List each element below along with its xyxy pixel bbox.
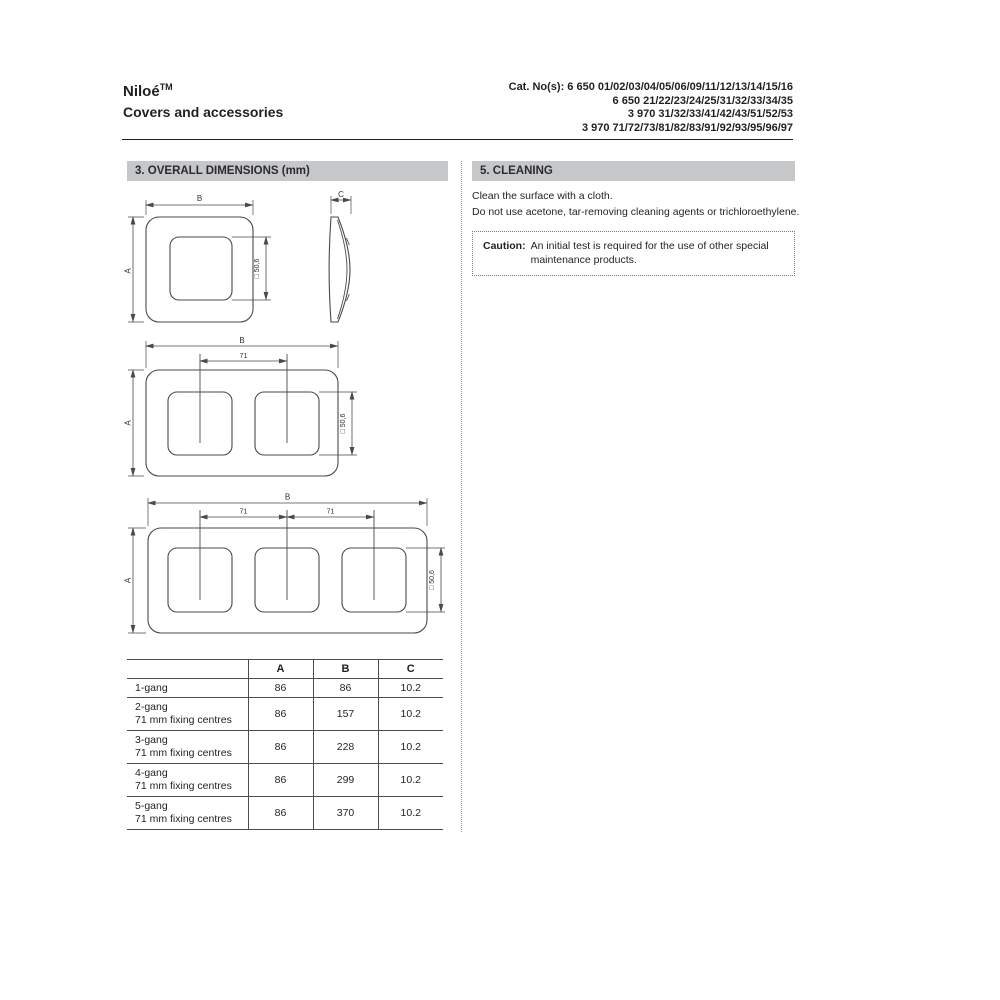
catalogue-numbers: Cat. No(s): 6 650 01/02/03/04/05/06/09/1…	[509, 81, 793, 135]
section-heading-cleaning: 5. CLEANING	[472, 161, 795, 181]
trademark-symbol: TM	[160, 82, 173, 92]
dim-label-A: A	[124, 268, 133, 274]
table-header-row: A B C	[127, 660, 443, 679]
page-title: NiloéTM	[123, 78, 283, 101]
dim-label-window: □ 50,6	[254, 258, 261, 278]
table-row: 3-gang 71 mm fixing centres 86 228 10.2	[127, 731, 443, 764]
dimension-A: A	[124, 370, 145, 476]
dimension-B: B	[148, 493, 427, 527]
dimension-A: A	[124, 217, 145, 322]
dimension-71: 71	[200, 353, 287, 361]
front-view-3-gang	[148, 510, 427, 633]
table-row: 2-gang 71 mm fixing centres 86 157 10.2	[127, 698, 443, 731]
dim-label-B: B	[239, 336, 244, 345]
page-subtitle: Covers and accessories	[123, 103, 283, 121]
col-header-B: B	[313, 660, 378, 679]
title-block: NiloéTM Covers and accessories	[123, 78, 283, 121]
dimension-C: C	[331, 190, 351, 214]
cleaning-instructions: Clean the surface with a cloth. Do not u…	[472, 189, 802, 220]
dimension-B: B	[146, 194, 253, 215]
cat-line: 3 970 31/32/33/41/42/43/51/52/53	[509, 108, 793, 122]
dim-label-B: B	[197, 194, 202, 203]
dim-label-71: 71	[240, 509, 248, 516]
dim-label-window: □ 50,6	[429, 570, 436, 590]
col-header-C: C	[378, 660, 443, 679]
dim-label-A: A	[124, 577, 133, 583]
drawing-2-gang: B 71 A □ 50,6	[125, 335, 375, 485]
drawing-1-gang: B A □ 50,6 C	[125, 188, 370, 336]
cleaning-line: Do not use acetone, tar-removing cleanin…	[472, 205, 802, 221]
window-opening	[170, 237, 232, 300]
col-header-blank	[127, 660, 248, 679]
dim-label-B: B	[285, 493, 290, 502]
cleaning-line: Clean the surface with a cloth.	[472, 189, 802, 205]
side-view-profile	[329, 217, 350, 322]
caution-text: An initial test is required for the use …	[531, 239, 769, 267]
dim-label-A: A	[124, 420, 133, 426]
cat-line: 6 650 21/22/23/24/25/31/32/33/34/35	[509, 95, 793, 109]
cat-line: Cat. No(s): 6 650 01/02/03/04/05/06/09/1…	[509, 81, 793, 95]
front-view-1-gang	[146, 217, 253, 322]
table-row: 1-gang 86 86 10.2	[127, 679, 443, 698]
dim-label-C: C	[338, 190, 344, 199]
table-row: 4-gang 71 mm fixing centres 86 299 10.2	[127, 764, 443, 797]
front-view-2-gang	[146, 354, 338, 476]
dimension-A: A	[124, 528, 147, 633]
dim-label-71: 71	[240, 353, 248, 360]
caution-label: Caution:	[483, 239, 526, 267]
col-header-A: A	[248, 660, 313, 679]
cat-line: 3 970 71/72/73/81/82/83/91/92/93/95/96/9…	[509, 122, 793, 136]
dimensions-table: A B C 1-gang 86 86 10.2 2-gang 71 mm fix…	[127, 659, 443, 830]
drawing-3-gang: B 71 71 A □ 50,6	[125, 488, 461, 646]
header-divider-rule	[122, 139, 793, 140]
dim-label-71: 71	[327, 509, 335, 516]
section-heading-dimensions: 3. OVERALL DIMENSIONS (mm)	[127, 161, 448, 181]
dimension-71-left: 71	[200, 509, 287, 518]
caution-box: Caution: An initial test is required for…	[472, 231, 795, 276]
dim-label-window: □ 50,6	[340, 413, 347, 433]
dimension-B: B	[146, 336, 338, 368]
column-divider-dotted	[461, 161, 462, 832]
table-row: 5-gang 71 mm fixing centres 86 370 10.2	[127, 797, 443, 830]
dimension-71-right: 71	[287, 509, 374, 518]
